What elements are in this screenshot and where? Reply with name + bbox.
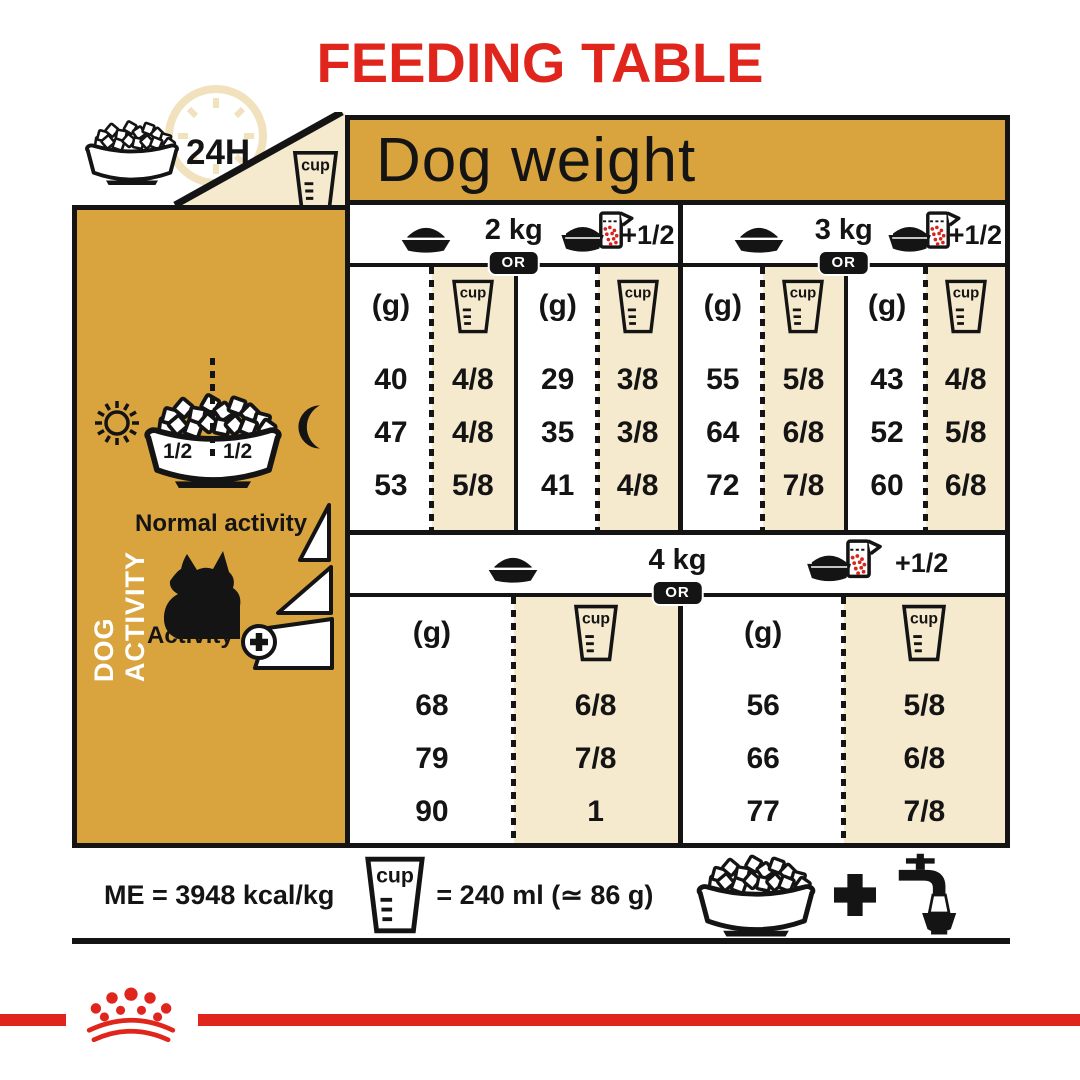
cup-value: 4/8 — [926, 353, 1005, 406]
bowl-split-dotted-line — [210, 358, 215, 458]
kibble-only-subcolumn: (g) 40 47 53 4/8 4/8 5/8 — [350, 267, 514, 530]
plus-half-label: +1/2 — [621, 220, 674, 251]
cup-value: 7/8 — [763, 459, 844, 512]
cup-header — [514, 597, 678, 669]
or-badge: OR — [488, 250, 541, 276]
dog-weight-label: Dog weight — [376, 125, 696, 196]
grams-value: 43 — [848, 353, 927, 406]
dog-weight-header: Dog weight — [345, 115, 1010, 205]
water-faucet-icon — [888, 853, 958, 937]
plus-half-label: +1/2 — [949, 220, 1002, 251]
kibble-bowl-icon — [80, 118, 184, 187]
grams-value: 29 — [518, 353, 598, 406]
grams-value: 55 — [683, 353, 764, 406]
activity-label: Activity — [147, 622, 234, 650]
section-4kg: 4 kg OR +1/2 (g) 68 79 90 — [350, 530, 1005, 843]
cup-value: 4/8 — [432, 406, 514, 459]
grams-value: 56 — [683, 679, 844, 732]
grams-value: 60 — [848, 459, 927, 512]
brand-rule-left — [0, 1014, 66, 1026]
cup-value: 6/8 — [514, 679, 678, 732]
feeding-table-page: cup FE — [0, 0, 1080, 1080]
weight-column-2kg: 2 kg OR +1/2 (g) 40 47 53 — [350, 205, 678, 530]
kibble-plus-wet-subcolumn: (g) 56 66 77 5/8 6/8 7/8 — [678, 597, 1006, 843]
duration-label: 24H — [186, 133, 250, 173]
moon-icon — [293, 400, 329, 454]
grams-header: (g) — [350, 597, 514, 669]
cup-value: 5/8 — [844, 679, 1005, 732]
cup-value: 6/8 — [926, 459, 1005, 512]
or-badge: OR — [818, 250, 871, 276]
grams-value: 41 — [518, 459, 598, 512]
cup-value: 7/8 — [844, 785, 1005, 838]
cup-value: 3/8 — [598, 353, 678, 406]
measuring-cup-icon — [292, 149, 339, 211]
measuring-cup-icon — [573, 603, 619, 663]
plus-circle-icon — [239, 622, 279, 662]
cup-value: 4/8 — [598, 459, 678, 512]
half-ration-left-label: 1/2 — [163, 440, 192, 464]
grams-header: (g) — [683, 267, 764, 345]
kibble-only-subcolumn: (g) 68 79 90 6/8 7/8 1 — [350, 597, 678, 843]
normal-activity-label: Normal activity — [135, 510, 307, 538]
cup-value: 3/8 — [598, 406, 678, 459]
cup-value: 5/8 — [432, 459, 514, 512]
plus-half-label: +1/2 — [895, 548, 948, 579]
grams-value: 66 — [683, 732, 844, 785]
cup-value: 5/8 — [926, 406, 1005, 459]
grams-value: 35 — [518, 406, 598, 459]
grams-value: 40 — [350, 353, 432, 406]
cup-value: 6/8 — [844, 732, 1005, 785]
cup-header — [844, 597, 1005, 669]
cup-equivalence-label: = 240 ml (≃ 86 g) — [436, 880, 653, 911]
dog-activity-sidebar: 1/2 1/2 DOG ACTIVITY Normal activity Act… — [72, 205, 345, 848]
grams-value: 72 — [683, 459, 764, 512]
grams-value: 79 — [350, 732, 514, 785]
kibble-only-subcolumn: (g) 55 64 72 5/8 6/8 7/8 — [683, 267, 844, 530]
activity-ramp-low-icon — [298, 502, 332, 563]
grams-header: (g) — [350, 267, 432, 345]
measuring-cup-icon — [364, 854, 426, 936]
measuring-cup-icon — [901, 603, 947, 663]
grams-value: 90 — [350, 785, 514, 838]
royal-canin-crown-logo — [74, 984, 188, 1048]
feeding-values-grid: 2 kg OR +1/2 (g) 40 47 53 — [345, 205, 1010, 848]
metabolizable-energy-label: ME = 3948 kcal/kg — [104, 880, 334, 911]
grams-value: 53 — [350, 459, 432, 512]
grams-header: (g) — [683, 597, 844, 669]
cup-value: 5/8 — [763, 353, 844, 406]
kibble-bowl-icon — [690, 852, 822, 939]
cup-value: 1 — [514, 785, 678, 838]
cup-header — [926, 267, 1005, 345]
cup-value: 4/8 — [432, 353, 514, 406]
or-badge: OR — [651, 580, 704, 606]
grams-value: 77 — [683, 785, 844, 838]
grams-value: 52 — [848, 406, 927, 459]
kibble-plus-wet-subcolumn: (g) 29 35 41 3/8 3/8 4/8 — [514, 267, 678, 530]
weight-header-2kg: 2 kg OR +1/2 — [350, 205, 678, 267]
brand-rule-right — [198, 1014, 1080, 1026]
cup-header — [763, 267, 844, 345]
half-ration-right-label: 1/2 — [223, 440, 252, 464]
grams-value: 64 — [683, 406, 764, 459]
grams-value: 47 — [350, 406, 432, 459]
measuring-cup-icon — [451, 278, 495, 335]
weight-column-3kg: 3 kg OR +1/2 (g) 55 64 72 — [678, 205, 1006, 530]
kibble-plus-wet-subcolumn: (g) 43 52 60 4/8 5/8 6/8 — [844, 267, 1005, 530]
weight-header-4kg: 4 kg OR +1/2 — [350, 535, 1005, 597]
plus-icon — [834, 874, 876, 916]
activity-ramp-mid-icon — [276, 564, 334, 616]
cup-header — [598, 267, 678, 345]
bowl-with-pouch-icon — [798, 538, 890, 596]
sun-icon — [92, 398, 142, 448]
measuring-cup-icon — [944, 278, 988, 335]
legend-footer: ME = 3948 kcal/kg = 240 ml (≃ 86 g) — [72, 852, 1010, 944]
cup-value: 7/8 — [514, 732, 678, 785]
daily-ration-icon-group: 24H — [80, 118, 250, 187]
grams-header: (g) — [518, 267, 598, 345]
grams-value: 68 — [350, 679, 514, 732]
measuring-cup-icon — [616, 278, 660, 335]
measuring-cup-icon — [781, 278, 825, 335]
cup-value: 6/8 — [763, 406, 844, 459]
grams-header: (g) — [848, 267, 927, 345]
section-2kg-3kg: 2 kg OR +1/2 (g) 40 47 53 — [350, 205, 1005, 530]
weight-header-3kg: 3 kg OR +1/2 — [683, 205, 1006, 267]
cup-header — [432, 267, 514, 345]
